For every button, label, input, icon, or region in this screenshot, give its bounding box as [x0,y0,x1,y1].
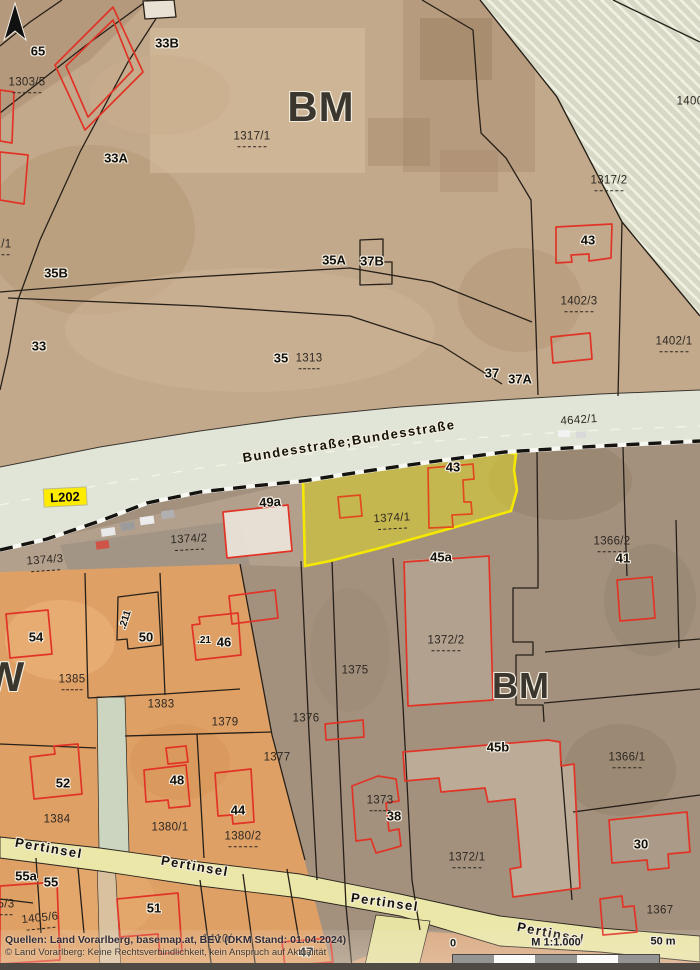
house-number-35b: 35B [44,267,68,280]
house-number-46: 46 [217,636,231,649]
map-canvas[interactable] [0,0,700,970]
house-number-41: 41 [616,552,630,565]
aerial-terrain [0,0,582,392]
parcel-label-1377: 1377 [264,752,291,764]
north-arrow-icon [0,0,30,44]
house-number-33: 33 [32,340,46,353]
house-number-37b: 37B [360,255,384,268]
scalebar-segment [618,955,659,963]
attribution-disclaimer: © Land Vorarlberg: Keine Rechtsverbindli… [5,947,326,958]
parcel-label-1402-3: 1402/3 [561,296,598,308]
house-number-45b: 45b [487,741,509,754]
house-number-44: 44 [231,804,245,817]
house-number-49a: 49a [259,495,282,509]
parcel-label-1376: 1376 [293,713,320,725]
house-number-65: 65 [31,45,45,58]
parcel-label-1374-2: 1374/2 [170,533,208,546]
zone-letter-bm-mid: BM [492,668,550,704]
house-number-33b: 33B [155,37,179,50]
parcel-label-1375: 1375 [342,665,369,677]
parcel-label-1366-1: 1366/1 [609,752,646,764]
scalebar-distance-label: 50 m [650,937,675,948]
parcel-label-1-1: 1/1 [0,239,11,251]
road-badge-l202: L202 [44,487,86,506]
parcel-label-1313: 1313 [296,353,323,365]
house-number-30: 30 [634,838,648,851]
parcel-label-1380-1: 1380/1 [152,822,189,834]
house-number-45a: 45a [430,551,452,564]
map-viewport[interactable]: BM BM W Bundesstraße;Bundesstraße L202 P… [0,0,700,970]
parcel-label-1373: 1373 [367,795,394,807]
house-number-dot21: .21 [197,636,211,646]
house-number-54: 54 [29,631,43,644]
scalebar-zero-label: 0 [450,939,456,950]
parcel-label-1402-1: 1402/1 [656,336,693,348]
parcel-label-1317-2: 1317/2 [591,175,628,187]
parcel-label-1400: 1400 [677,96,700,108]
parcel-label-5-3: 5/3 [0,899,14,911]
house-number-35a: 35A [322,254,346,267]
scalebar-segment [453,955,494,963]
parcel-label-1379: 1379 [212,717,239,729]
house-number-55a: 55a [15,870,37,883]
house-number-43-highlight: 43 [446,461,460,474]
parcel-label-1317-1: 1317/1 [234,131,271,143]
scalebar-segment [494,955,535,963]
parcel-label-1372-1: 1372/1 [449,852,486,864]
house-number-35: 35 [274,352,288,365]
zone-letter-w: W [0,656,25,698]
parcel-label-1383: 1383 [148,699,175,711]
scalebar-ratio-label: M 1:1.000 [531,938,581,949]
bottom-strip [0,963,700,970]
house-number-38: 38 [387,810,401,823]
scalebar-segment [535,955,576,963]
parcel-label-1303-5: 1303/5 [9,77,46,89]
house-number-37: 37 [485,367,499,380]
house-number-50: 50 [139,631,153,644]
parcel-label-1380-2: 1380/2 [225,831,262,843]
parcel-label-1366-2: 1366/2 [594,536,631,548]
house-number-55: 55 [44,876,58,889]
house-number-48: 48 [170,774,184,787]
parcel-label-1367: 1367 [647,905,674,917]
parcel-label-1384: 1384 [44,814,71,826]
parcel-label-1385: 1385 [59,674,86,686]
house-number-37a: 37A [508,373,532,386]
house-number-51: 51 [147,902,161,915]
house-number-43-top: 43 [581,234,595,247]
house-number-33a: 33A [104,152,128,165]
zone-letter-bm-top: BM [287,86,354,128]
attribution-sources: Quellen: Land Vorarlberg, basemap.at, BE… [5,934,346,946]
scalebar-segment [577,955,618,963]
parcel-label-1374-1: 1374/1 [373,512,411,525]
parcel-label-1372-2: 1372/2 [428,635,465,647]
house-number-52: 52 [56,777,70,790]
